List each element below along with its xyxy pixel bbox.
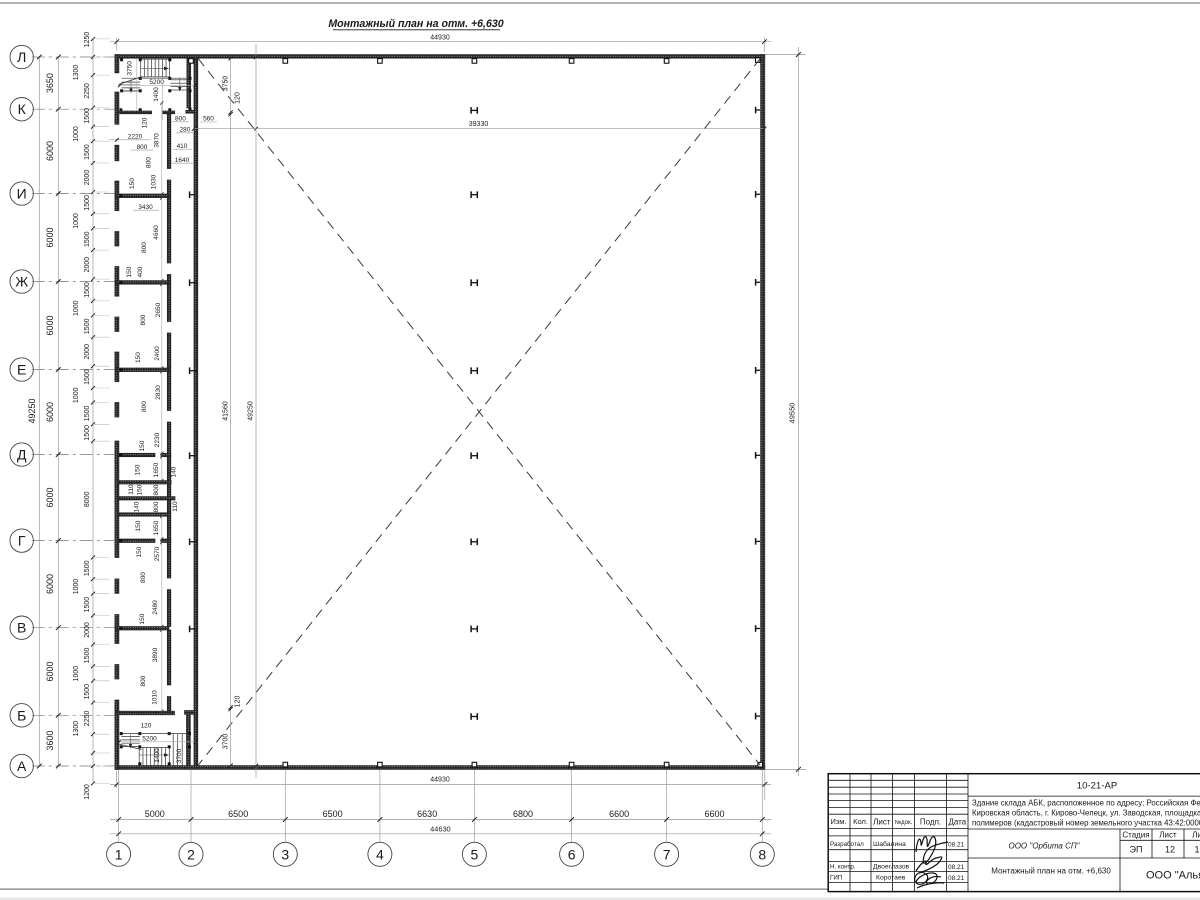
svg-text:2250: 2250 <box>84 711 91 727</box>
svg-text:2570: 2570 <box>154 546 161 561</box>
svg-text:5: 5 <box>471 846 479 862</box>
svg-text:Дата: Дата <box>948 818 966 827</box>
svg-text:800: 800 <box>141 242 148 253</box>
svg-text:3750: 3750 <box>127 61 134 76</box>
svg-text:1500: 1500 <box>84 282 91 298</box>
svg-text:800: 800 <box>141 401 148 412</box>
svg-text:Коротаев: Коротаев <box>876 875 906 882</box>
svg-text:3750: 3750 <box>222 76 229 92</box>
svg-text:Двоеглазов: Двоеглазов <box>873 864 910 871</box>
svg-text:3890: 3890 <box>152 647 159 662</box>
svg-text:6000: 6000 <box>45 141 55 161</box>
svg-text:150: 150 <box>129 178 136 189</box>
svg-text:6600: 6600 <box>704 809 724 819</box>
svg-text:1500: 1500 <box>84 108 91 124</box>
svg-text:В: В <box>17 620 26 636</box>
svg-text:6000: 6000 <box>45 227 55 247</box>
svg-text:150: 150 <box>135 352 142 363</box>
svg-text:3: 3 <box>281 846 289 862</box>
svg-text:150: 150 <box>126 266 133 277</box>
svg-text:2830: 2830 <box>155 385 162 400</box>
svg-text:Н. контр.: Н. контр. <box>830 864 856 871</box>
svg-text:560: 560 <box>203 116 214 123</box>
svg-text:2230: 2230 <box>154 432 161 447</box>
svg-text:ГИП: ГИП <box>830 875 842 882</box>
svg-text:08.21: 08.21 <box>948 875 965 882</box>
svg-text:Шабалина: Шабалина <box>873 840 906 848</box>
svg-text:ООО "Орбита СП": ООО "Орбита СП" <box>1008 842 1080 851</box>
svg-text:4: 4 <box>376 846 384 862</box>
svg-text:120: 120 <box>141 723 152 730</box>
svg-text:1: 1 <box>1194 845 1199 855</box>
svg-text:2000: 2000 <box>84 622 91 638</box>
svg-text:110: 110 <box>128 484 135 495</box>
svg-text:150: 150 <box>139 440 146 451</box>
svg-text:1650: 1650 <box>153 520 160 535</box>
svg-text:150: 150 <box>139 613 146 624</box>
svg-text:800: 800 <box>153 484 160 495</box>
svg-text:120: 120 <box>141 117 148 128</box>
svg-text:6000: 6000 <box>45 661 55 681</box>
svg-text:10-21-АР: 10-21-АР <box>1077 781 1118 792</box>
svg-text:1500: 1500 <box>84 369 91 385</box>
svg-text:800: 800 <box>146 157 153 168</box>
svg-text:1300: 1300 <box>73 721 80 737</box>
svg-text:120: 120 <box>235 696 242 708</box>
svg-text:Лист: Лист <box>1159 831 1177 840</box>
svg-text:1500: 1500 <box>84 597 91 613</box>
svg-text:6800: 6800 <box>513 809 533 819</box>
svg-text:44930: 44930 <box>430 777 450 784</box>
svg-text:Лист: Лист <box>873 818 891 827</box>
svg-text:6600: 6600 <box>609 809 629 819</box>
svg-text:2000: 2000 <box>84 344 91 360</box>
svg-text:150: 150 <box>135 464 142 475</box>
svg-text:150: 150 <box>135 520 142 531</box>
svg-text:Г: Г <box>18 533 26 549</box>
svg-text:2000: 2000 <box>84 170 91 186</box>
svg-text:1400: 1400 <box>154 748 161 763</box>
svg-text:2000: 2000 <box>84 257 91 273</box>
svg-text:49550: 49550 <box>788 403 797 424</box>
svg-text:5200: 5200 <box>149 79 164 86</box>
svg-text:800: 800 <box>140 572 147 583</box>
svg-text:8: 8 <box>758 846 766 862</box>
svg-text:Д: Д <box>17 447 27 463</box>
svg-text:12: 12 <box>1165 845 1175 855</box>
svg-text:1000: 1000 <box>73 579 80 595</box>
svg-text:1500: 1500 <box>84 406 91 422</box>
svg-text:1000: 1000 <box>73 666 80 682</box>
svg-text:2250: 2250 <box>84 83 91 99</box>
svg-text:3700: 3700 <box>176 748 183 763</box>
svg-text:Монтажный план на отм. +6,630: Монтажный план на отм. +6,630 <box>328 18 503 30</box>
svg-text:6500: 6500 <box>228 809 248 819</box>
svg-text:Стадия: Стадия <box>1122 831 1149 840</box>
svg-text:Кол.: Кол. <box>853 817 868 826</box>
svg-text:1000: 1000 <box>73 213 80 229</box>
svg-text:41560: 41560 <box>222 401 229 421</box>
svg-text:Е: Е <box>17 362 26 378</box>
svg-text:ООО "Альянс: ООО "Альянс <box>1146 870 1200 882</box>
svg-text:5000: 5000 <box>145 809 165 819</box>
svg-text:150: 150 <box>137 484 144 495</box>
svg-text:Л: Л <box>17 49 26 65</box>
svg-text:Монтажный план на отм. +6,630: Монтажный план на отм. +6,630 <box>991 866 1111 875</box>
svg-text:полимеров (кадастровый номер з: полимеров (кадастровый номер земельного … <box>972 819 1200 828</box>
svg-text:3700: 3700 <box>222 734 229 750</box>
svg-text:1010: 1010 <box>152 690 159 705</box>
svg-text:А: А <box>17 758 27 774</box>
svg-text:49250: 49250 <box>27 398 37 423</box>
svg-text:6630: 6630 <box>417 809 437 819</box>
svg-text:1650: 1650 <box>153 462 160 477</box>
svg-text:7: 7 <box>663 846 671 862</box>
svg-text:44930: 44930 <box>430 34 450 41</box>
svg-text:800: 800 <box>153 501 160 512</box>
svg-text:44630: 44630 <box>430 825 451 834</box>
svg-text:400: 400 <box>137 266 144 277</box>
svg-text:4660: 4660 <box>153 225 160 240</box>
svg-text:1400: 1400 <box>153 87 160 102</box>
svg-text:3650: 3650 <box>45 73 55 93</box>
svg-text:140: 140 <box>134 501 141 512</box>
svg-text:1000: 1000 <box>73 387 80 403</box>
svg-text:1200: 1200 <box>84 784 91 800</box>
svg-text:110: 110 <box>172 501 179 512</box>
svg-text:6000: 6000 <box>45 487 55 507</box>
svg-text:5200: 5200 <box>142 735 157 742</box>
svg-text:2400: 2400 <box>154 346 161 361</box>
svg-text:2: 2 <box>187 846 195 862</box>
svg-text:1500: 1500 <box>84 144 91 160</box>
svg-text:1000: 1000 <box>73 300 80 316</box>
svg-text:К: К <box>18 101 27 117</box>
svg-text:6000: 6000 <box>45 315 55 335</box>
svg-text:2480: 2480 <box>152 600 159 615</box>
svg-text:1000: 1000 <box>73 126 80 142</box>
svg-text:120: 120 <box>235 92 242 104</box>
svg-text:1500: 1500 <box>84 560 91 576</box>
svg-text:1500: 1500 <box>84 231 91 247</box>
svg-text:Здание склада АБК, расположенн: Здание склада АБК, расположенное по адре… <box>972 798 1200 807</box>
svg-text:1250: 1250 <box>84 32 91 48</box>
svg-text:Лис: Лис <box>1192 831 1200 840</box>
svg-text:1030: 1030 <box>151 174 158 189</box>
svg-text:И: И <box>17 186 27 202</box>
svg-text:150: 150 <box>136 546 143 557</box>
svg-text:Ж: Ж <box>15 274 28 290</box>
svg-text:8000: 8000 <box>84 491 91 507</box>
svg-text:3870: 3870 <box>154 133 161 148</box>
svg-text:1300: 1300 <box>73 65 80 81</box>
svg-text:1500: 1500 <box>84 195 91 211</box>
svg-text:1500: 1500 <box>84 425 91 441</box>
svg-text:Б: Б <box>17 707 26 723</box>
svg-text:6000: 6000 <box>45 574 55 594</box>
svg-text:2650: 2650 <box>155 302 162 317</box>
svg-text:Подп.: Подп. <box>920 818 941 827</box>
svg-text:№док.: №док. <box>895 819 913 826</box>
svg-text:1: 1 <box>115 846 123 862</box>
svg-text:1500: 1500 <box>84 684 91 700</box>
svg-text:49250: 49250 <box>248 401 255 421</box>
svg-text:Разработал: Разработал <box>830 841 864 848</box>
svg-text:800: 800 <box>140 675 147 686</box>
svg-text:6000: 6000 <box>45 402 55 422</box>
svg-text:ЭП: ЭП <box>1130 845 1143 855</box>
svg-text:08.21: 08.21 <box>948 864 965 871</box>
svg-text:6500: 6500 <box>323 809 343 819</box>
svg-text:Кировская область, г. Кирово-Ч: Кировская область, г. Кирово-Чепецк, ул.… <box>972 808 1200 817</box>
svg-text:6: 6 <box>568 846 576 862</box>
svg-text:1500: 1500 <box>84 318 91 334</box>
svg-text:3600: 3600 <box>45 731 55 751</box>
svg-text:140: 140 <box>171 466 178 477</box>
svg-text:800: 800 <box>140 314 147 325</box>
svg-text:08.21: 08.21 <box>948 841 965 848</box>
svg-text:1500: 1500 <box>84 648 91 664</box>
svg-text:39330: 39330 <box>469 121 489 128</box>
svg-text:Изм.: Изм. <box>830 817 846 826</box>
